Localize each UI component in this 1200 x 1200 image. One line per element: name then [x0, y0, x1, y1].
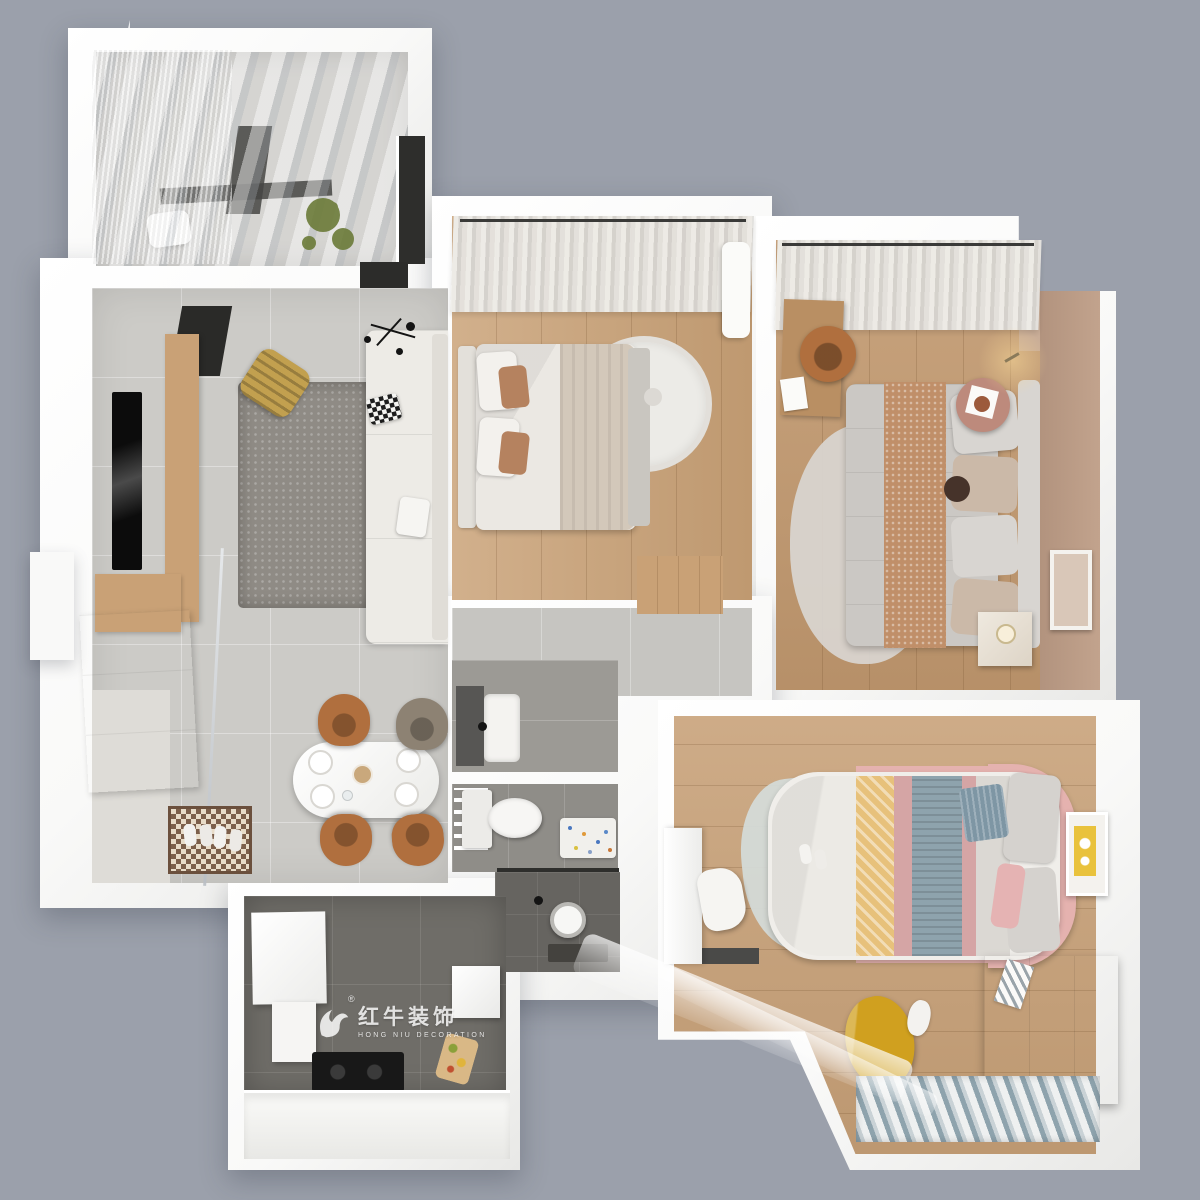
- window-bench: [722, 242, 750, 338]
- bull-logo-icon: [314, 1004, 352, 1042]
- duvet-pink-stripe: [894, 776, 914, 956]
- blue-checked-pillow: [958, 783, 1009, 843]
- drinking-glass: [342, 790, 353, 801]
- faucet: [478, 722, 487, 731]
- place-setting: [394, 782, 419, 807]
- dark-window-panel: [396, 136, 425, 264]
- wall-sconce-glow: [978, 326, 1048, 396]
- slippers: [213, 826, 227, 849]
- bed-headboard: [458, 346, 476, 528]
- ceiling-lamp-bulb: [364, 336, 371, 343]
- sofa-backrest: [432, 334, 448, 640]
- shower-glass-divider: [497, 868, 619, 872]
- study-desk: [664, 828, 702, 964]
- kitchen-counter: [244, 1090, 510, 1159]
- exterior-wall-notch: [30, 552, 74, 660]
- brand-text: 红牛装饰 HONG NIU DECORATION: [358, 1006, 487, 1040]
- brand-name-en: HONG NIU DECORATION: [358, 1032, 487, 1040]
- curtain-rod: [460, 219, 746, 222]
- brown-pillow: [498, 365, 530, 410]
- duvet-blue-throw: [912, 776, 964, 956]
- master-accent-wall: [1040, 291, 1100, 690]
- shag-rug: [238, 382, 372, 608]
- table-lamp: [996, 624, 1016, 644]
- sheer-curtain: [92, 50, 232, 264]
- place-setting: [310, 784, 335, 809]
- doorway-threshold: [637, 556, 723, 614]
- laundry-counter: [695, 948, 759, 964]
- curtain-rod: [782, 243, 1034, 246]
- desk-chair: [800, 326, 856, 382]
- dining-chair: [396, 698, 448, 750]
- brand-name-cn: 红牛装饰: [358, 1006, 487, 1029]
- serving-bowl: [352, 764, 373, 785]
- handheld-shower: [534, 896, 543, 905]
- kitchen-base-cabinet: [272, 1002, 316, 1062]
- brown-pillow: [498, 431, 530, 476]
- ceiling-lamp-bulb: [406, 322, 415, 331]
- brand-watermark: ® 红牛装饰 HONG NIU DECORATION: [314, 992, 484, 1054]
- duvet-yellow-stripe: [856, 776, 896, 956]
- shoe-cabinet: [79, 609, 198, 793]
- tv: [112, 392, 142, 570]
- kitchen-wall-cabinet: [251, 911, 327, 1004]
- shower-head: [550, 902, 586, 938]
- registered-mark: ®: [348, 994, 355, 1004]
- gray-pillow: [1002, 772, 1061, 864]
- place-setting: [396, 748, 421, 773]
- wall-art-yellow: [1074, 826, 1096, 876]
- floorplan-scene: ® 红牛装饰 HONG NIU DECORATION: [0, 0, 1200, 1200]
- vanity-sink: [484, 694, 520, 762]
- ceiling-lamp-bulb: [396, 348, 403, 355]
- bath-mat: [560, 818, 616, 858]
- foot-blanket: [628, 348, 650, 526]
- dining-chair: [320, 814, 372, 866]
- slippers: [183, 823, 197, 846]
- toilet-bowl: [488, 798, 542, 838]
- bed-throw: [560, 344, 634, 530]
- bed-headboard: [1018, 380, 1040, 648]
- small-basket: [644, 388, 662, 406]
- dining-chair: [318, 694, 370, 746]
- duvet-end: [772, 776, 868, 956]
- bed-pillow: [950, 514, 1019, 577]
- white-pillow: [396, 496, 431, 538]
- cooktop: [312, 1052, 404, 1092]
- textured-throw: [884, 382, 946, 648]
- place-setting: [308, 750, 333, 775]
- window-curtains: [450, 216, 753, 312]
- desk-papers: [780, 376, 808, 411]
- entry-doormat: [168, 806, 252, 874]
- wall-art-frame: [1050, 550, 1092, 630]
- table-plate: [974, 396, 990, 412]
- hanging-plant: [306, 198, 340, 232]
- round-pouf: [944, 476, 970, 502]
